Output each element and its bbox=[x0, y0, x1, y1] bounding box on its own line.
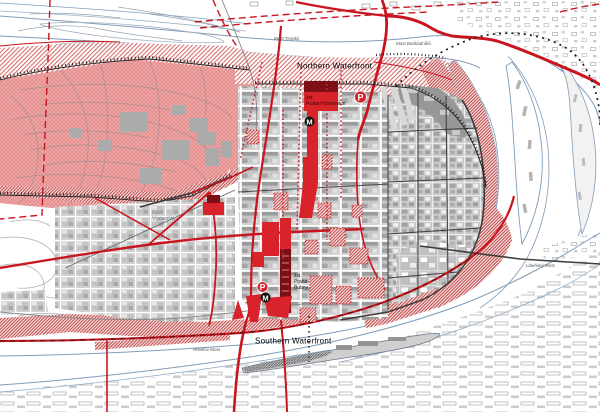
svg-text:Praha-Holešovice: Praha-Holešovice bbox=[306, 101, 346, 107]
svg-text:P: P bbox=[357, 92, 363, 102]
svg-text:P: P bbox=[260, 282, 266, 292]
svg-text:Southern Waterfront: Southern Waterfront bbox=[255, 337, 332, 346]
svg-text:M: M bbox=[262, 294, 268, 303]
svg-text:Most Trojský: Most Trojský bbox=[274, 36, 300, 41]
svg-text:Bubny: Bubny bbox=[294, 285, 309, 291]
svg-text:Hlávkův Most: Hlávkův Most bbox=[193, 346, 221, 352]
svg-text:M: M bbox=[306, 118, 312, 127]
svg-text:Výstaviště: Výstaviště bbox=[152, 216, 175, 222]
svg-text:Most Barikádníků: Most Barikádníků bbox=[396, 40, 431, 46]
svg-text:Northern Waterfront: Northern Waterfront bbox=[297, 62, 373, 71]
svg-text:Libeňský Most: Libeňský Most bbox=[526, 263, 556, 268]
